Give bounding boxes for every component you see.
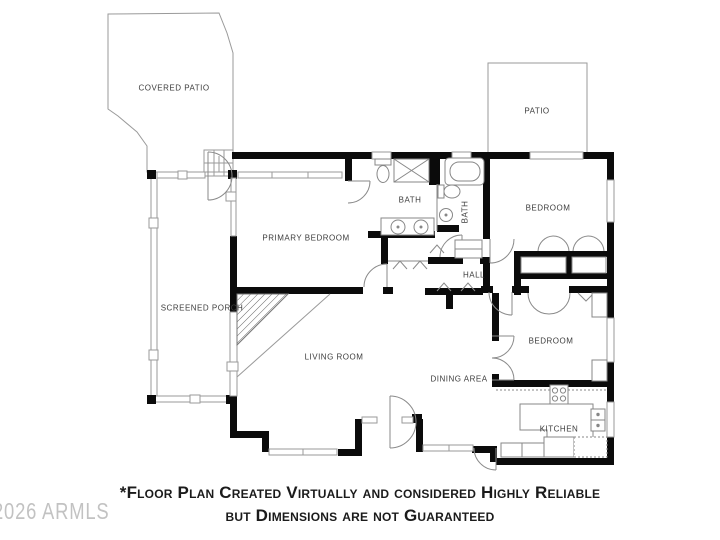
room-label-bath-primary: BATH [399, 196, 422, 205]
bathtub [445, 158, 484, 185]
room-label-bath-hall: BATH [461, 201, 470, 224]
double-vanity [381, 218, 434, 235]
room-label-dining-area: DINING AREA [430, 375, 487, 384]
sink-hall-bath [440, 209, 453, 222]
shower [394, 159, 429, 182]
screened-porch-walls [149, 171, 227, 403]
stove [550, 385, 568, 404]
toilet-primary-bath [375, 159, 391, 183]
armls-watermark: 2026 ARMLS [0, 498, 109, 525]
floorplan-drawing [0, 0, 720, 540]
room-label-bedroom-ne: BEDROOM [526, 204, 571, 213]
toilet-hall-bath [438, 185, 460, 198]
covered-patio-outline [108, 13, 233, 172]
room-label-bedroom-se: BEDROOM [529, 337, 574, 346]
fireplace [237, 294, 330, 377]
floorplan-page: COVERED PATIO PATIO PRIMARY BEDROOM BATH… [0, 0, 720, 540]
room-label-hall: HALL [463, 271, 485, 280]
outdoor-outlines [108, 13, 587, 176]
room-label-patio: PATIO [524, 107, 549, 116]
room-label-primary-bedroom: PRIMARY BEDROOM [262, 234, 349, 243]
hall-closet-shelves [455, 240, 482, 258]
room-label-kitchen: KITCHEN [540, 425, 579, 434]
room-label-covered-patio: COVERED PATIO [138, 84, 209, 93]
room-label-living-room: LIVING ROOM [305, 353, 364, 362]
kitchen-sink [591, 409, 605, 431]
room-label-screened-porch: SCREENED PORCH [161, 304, 244, 313]
